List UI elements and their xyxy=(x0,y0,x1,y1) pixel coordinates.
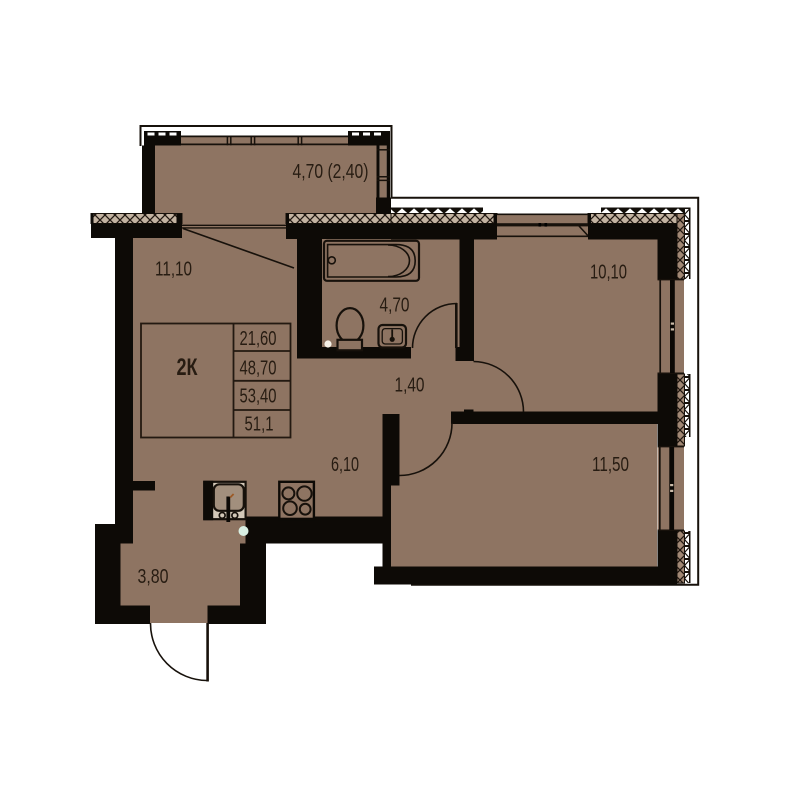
svg-text:4,70: 4,70 xyxy=(380,294,410,317)
svg-text:48,70: 48,70 xyxy=(240,358,277,380)
svg-text:1,40: 1,40 xyxy=(395,374,425,397)
svg-text:11,50: 11,50 xyxy=(592,453,629,476)
svg-text:53,40: 53,40 xyxy=(240,386,277,408)
svg-text:4,70 (2,40): 4,70 (2,40) xyxy=(293,161,369,183)
svg-text:2К: 2К xyxy=(177,354,198,381)
svg-text:21,60: 21,60 xyxy=(240,328,277,350)
svg-text:51,1: 51,1 xyxy=(245,414,274,436)
svg-text:3,80: 3,80 xyxy=(138,565,169,588)
svg-text:10,10: 10,10 xyxy=(590,261,627,284)
svg-text:11,10: 11,10 xyxy=(155,258,192,281)
svg-text:6,10: 6,10 xyxy=(331,453,359,476)
